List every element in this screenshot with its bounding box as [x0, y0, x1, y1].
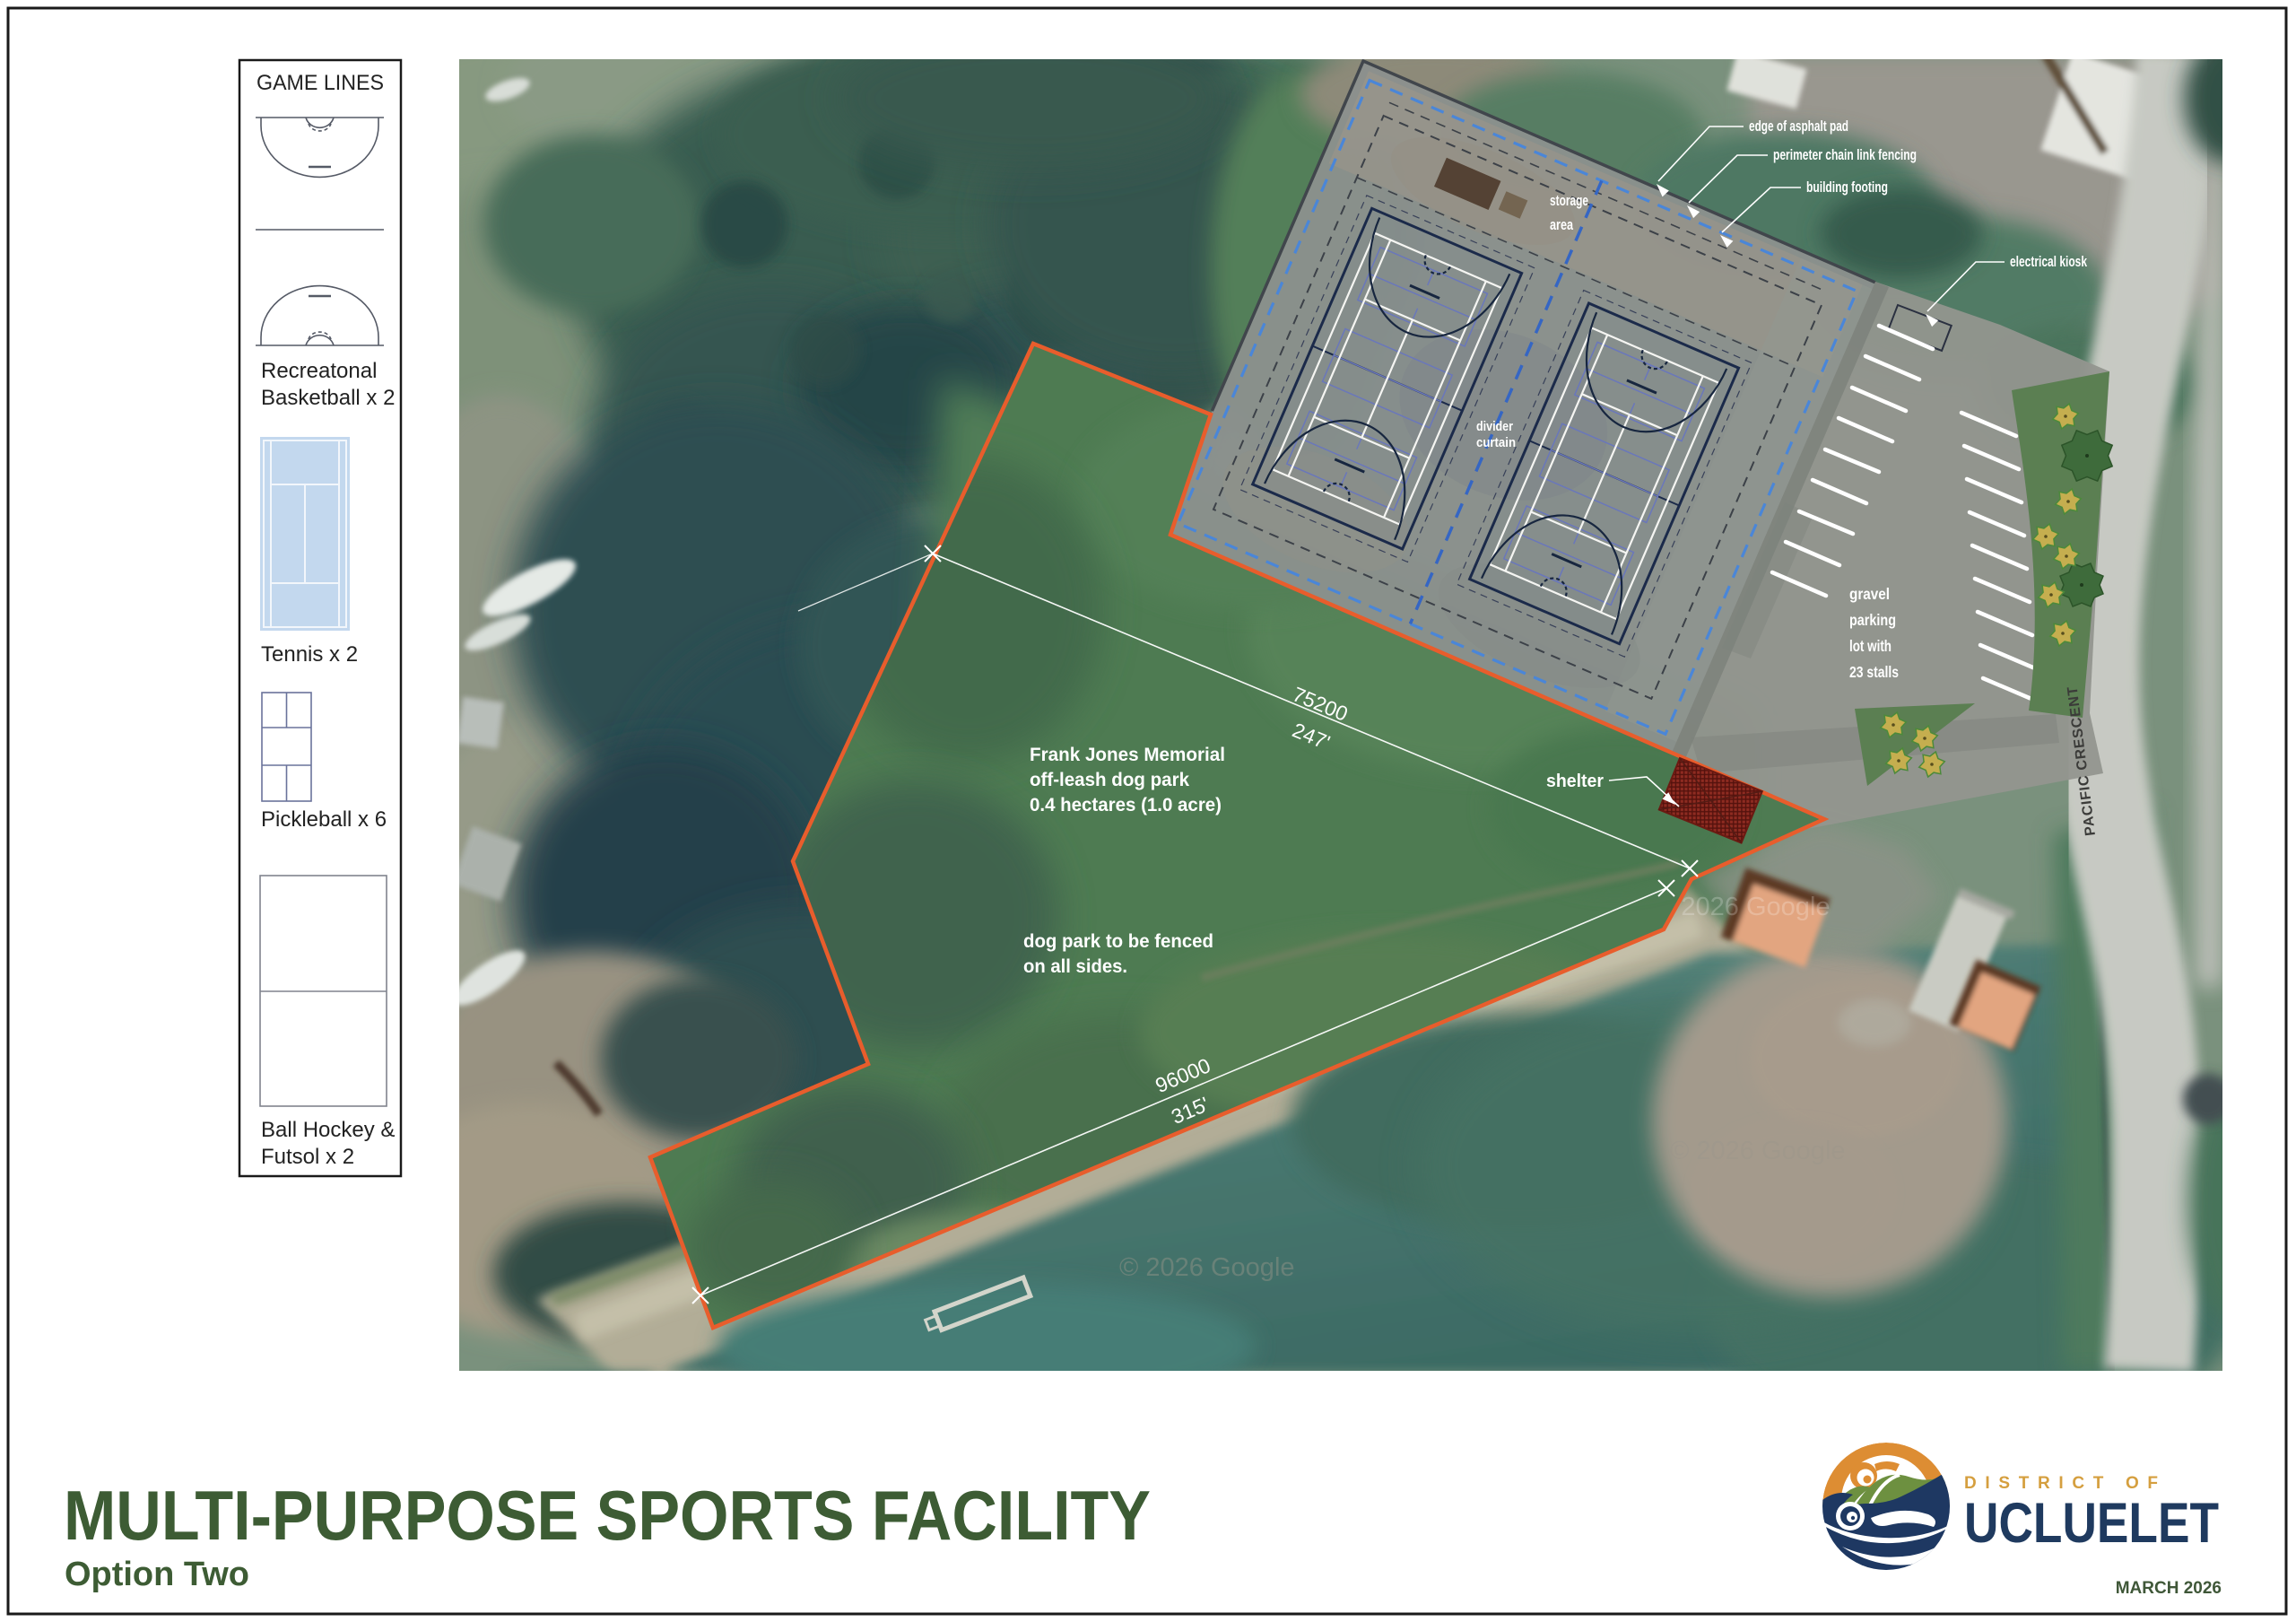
svg-text:© 2026 Google: © 2026 Google	[1670, 1137, 1846, 1165]
svg-text:23 stalls: 23 stalls	[1849, 663, 1899, 681]
svg-text:curtain: curtain	[1476, 436, 1516, 450]
svg-text:Basketball x 2: Basketball x 2	[261, 386, 395, 410]
svg-text:Recreatonal: Recreatonal	[261, 359, 377, 383]
svg-text:building footing: building footing	[1806, 179, 1888, 196]
svg-text:Option Two: Option Two	[65, 1556, 249, 1593]
svg-text:lot with: lot with	[1849, 637, 1892, 655]
svg-text:MARCH 2026: MARCH 2026	[2116, 1579, 2222, 1598]
svg-text:electrical kiosk: electrical kiosk	[2010, 253, 2087, 270]
svg-text:storage: storage	[1550, 192, 1588, 209]
svg-text:gravel: gravel	[1849, 585, 1890, 603]
svg-text:perimeter chain link fencing: perimeter chain link fencing	[1773, 146, 1917, 163]
svg-text:MULTI-PURPOSE SPORTS FACILITY: MULTI-PURPOSE SPORTS FACILITY	[64, 1476, 1151, 1555]
svg-text:Ball Hockey &: Ball Hockey &	[261, 1118, 395, 1142]
svg-text:Tennis x 2: Tennis x 2	[261, 642, 358, 667]
svg-text:dog park to be fenced: dog park to be fenced	[1023, 931, 1213, 952]
svg-text:GAME LINES: GAME LINES	[257, 71, 384, 95]
svg-text:Futsol x 2: Futsol x 2	[261, 1145, 354, 1169]
svg-text:Frank Jones Memorial: Frank Jones Memorial	[1030, 745, 1225, 765]
svg-text:parking: parking	[1849, 611, 1896, 629]
svg-text:UCLUELET: UCLUELET	[1964, 1492, 2219, 1555]
svg-text:© 2026 Google: © 2026 Google	[1119, 1253, 1295, 1282]
svg-text:off-leash dog park: off-leash dog park	[1030, 770, 1189, 790]
svg-text:edge of asphalt pad: edge of asphalt pad	[1749, 118, 1848, 135]
svg-text:0.4 hectares (1.0 acre): 0.4 hectares (1.0 acre)	[1030, 795, 1222, 815]
svg-text:on all sides.: on all sides.	[1023, 956, 1127, 977]
svg-text:divider: divider	[1476, 420, 1513, 434]
svg-text:shelter: shelter	[1546, 772, 1604, 791]
svg-text:area: area	[1550, 216, 1573, 233]
svg-text:Pickleball x 6: Pickleball x 6	[261, 807, 387, 832]
